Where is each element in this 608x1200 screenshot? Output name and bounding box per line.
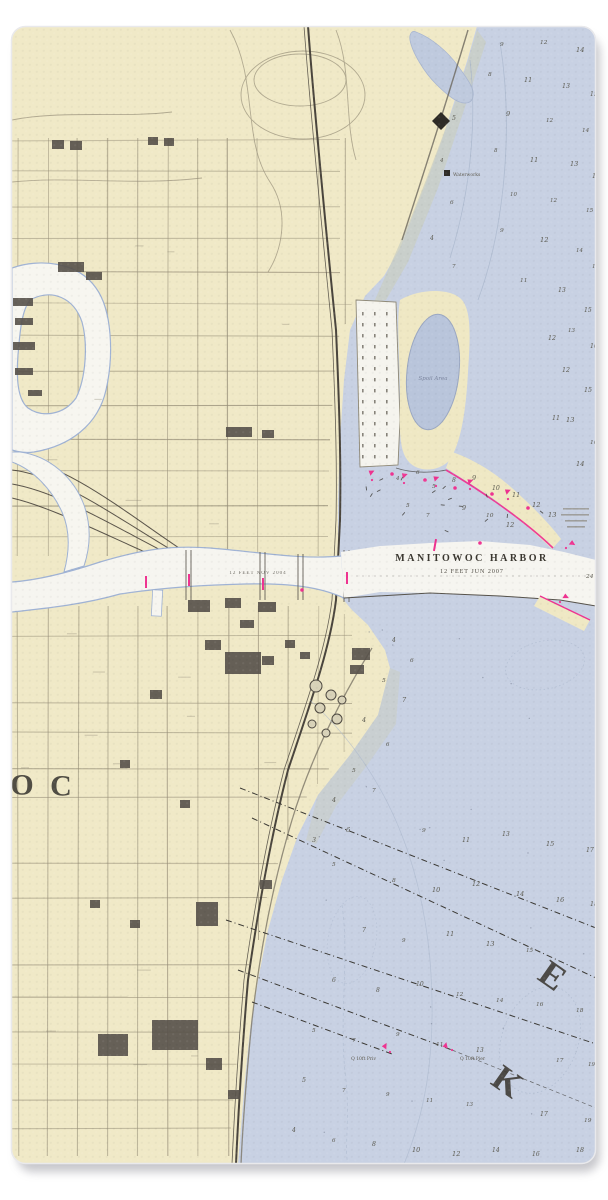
chart-print: Spoil Area [10, 26, 600, 1164]
beach-towel-product-photo: Spoil Area [0, 0, 608, 1200]
nautical-chart-towel: Spoil Area [0, 0, 608, 1200]
towel-texture [11, 26, 596, 1164]
